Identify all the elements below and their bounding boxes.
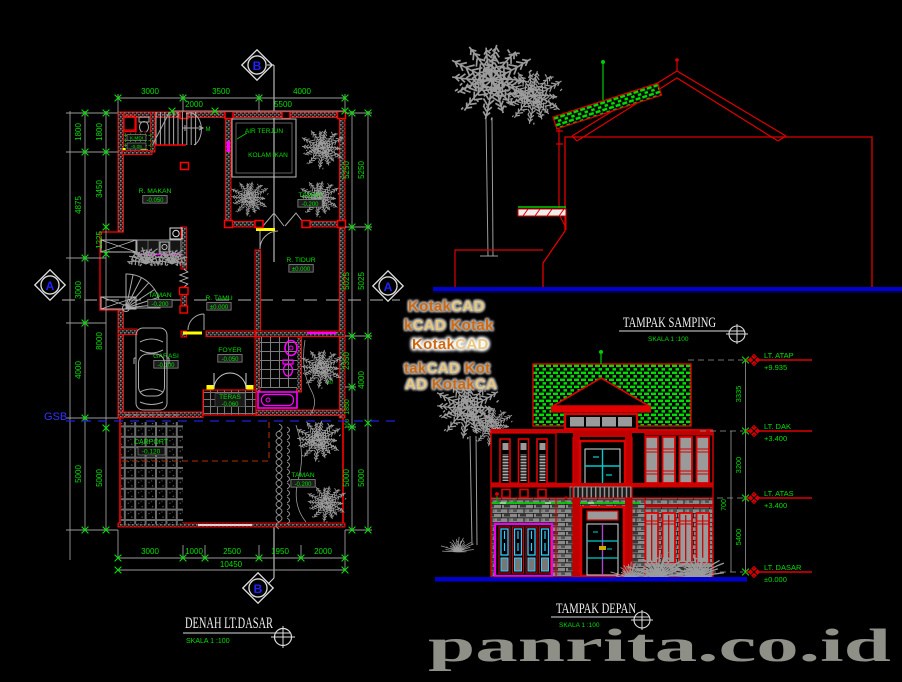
svg-text:3000: 3000 bbox=[74, 281, 83, 299]
svg-text:FOYER: FOYER bbox=[218, 347, 242, 354]
svg-text:5000: 5000 bbox=[74, 465, 83, 483]
svg-text:±0.000: ±0.000 bbox=[292, 267, 311, 273]
svg-text:-0.060: -0.060 bbox=[221, 402, 239, 408]
svg-text:4000: 4000 bbox=[357, 371, 366, 389]
svg-text:10450: 10450 bbox=[220, 560, 243, 569]
svg-text:R. TIDUR: R. TIDUR bbox=[286, 257, 315, 264]
svg-text:M: M bbox=[206, 127, 211, 133]
svg-text:CARPORT: CARPORT bbox=[134, 439, 169, 446]
svg-text:3000: 3000 bbox=[141, 87, 159, 96]
svg-text:B: B bbox=[254, 582, 263, 596]
svg-text:3000: 3000 bbox=[141, 547, 159, 556]
svg-text:R. TAMU: R. TAMU bbox=[205, 295, 232, 302]
svg-text:TAMPAK DEPAN: TAMPAK DEPAN bbox=[556, 601, 636, 617]
svg-text:4875: 4875 bbox=[74, 196, 83, 214]
svg-text:TAMAN: TAMAN bbox=[148, 292, 171, 299]
svg-text:100: 100 bbox=[345, 418, 351, 429]
svg-text:-0.120: -0.120 bbox=[142, 449, 161, 456]
svg-text:3450: 3450 bbox=[95, 180, 104, 198]
svg-text:5025: 5025 bbox=[342, 272, 351, 290]
svg-text:1000: 1000 bbox=[185, 547, 203, 556]
svg-text:10: 10 bbox=[327, 380, 333, 386]
svg-text:5000: 5000 bbox=[95, 469, 104, 487]
svg-text:SKALA 1 :100: SKALA 1 :100 bbox=[648, 336, 689, 343]
svg-text:±0.000: ±0.000 bbox=[210, 305, 229, 311]
svg-text:5250: 5250 bbox=[357, 161, 366, 179]
svg-text:K.MDI: K.MDI bbox=[130, 136, 143, 142]
svg-text:+3.400: +3.400 bbox=[764, 501, 787, 510]
svg-text:LT. ATAS: LT. ATAS bbox=[764, 489, 794, 498]
svg-text:GSB: GSB bbox=[44, 411, 67, 423]
svg-text:R. MAKAN: R. MAKAN bbox=[139, 188, 172, 195]
svg-text:DENAH LT.DASAR: DENAH LT.DASAR bbox=[185, 615, 273, 632]
svg-text:5000: 5000 bbox=[357, 469, 366, 487]
svg-text:-0.050: -0.050 bbox=[221, 357, 239, 363]
svg-text:B: B bbox=[253, 59, 262, 73]
svg-text:-0.050: -0.050 bbox=[146, 198, 164, 204]
svg-text:2000: 2000 bbox=[185, 100, 203, 109]
svg-text:TAMAN: TAMAN bbox=[291, 472, 314, 479]
svg-text:1225: 1225 bbox=[95, 231, 104, 249]
svg-text:-0.200: -0.200 bbox=[151, 302, 169, 308]
svg-text:1850: 1850 bbox=[344, 399, 351, 415]
svg-text:8000: 8000 bbox=[95, 332, 104, 350]
svg-text:1800: 1800 bbox=[95, 123, 104, 141]
svg-text:2000: 2000 bbox=[314, 547, 332, 556]
svg-text:5500: 5500 bbox=[274, 100, 292, 109]
svg-text:2350: 2350 bbox=[342, 352, 351, 370]
svg-text:3335: 3335 bbox=[734, 386, 743, 403]
svg-text:A: A bbox=[46, 279, 55, 293]
svg-text:TAMAN: TAMAN bbox=[298, 192, 321, 199]
svg-text:3500: 3500 bbox=[212, 87, 230, 96]
svg-text:LT. DAK: LT. DAK bbox=[764, 422, 791, 431]
svg-text:-0.200: -0.200 bbox=[294, 482, 312, 488]
svg-text:KOLAM IKAN: KOLAM IKAN bbox=[248, 152, 288, 159]
svg-text:+9.935: +9.935 bbox=[764, 363, 787, 372]
svg-text:±0.000: ±0.000 bbox=[764, 575, 787, 584]
svg-text:AIR TERJUN: AIR TERJUN bbox=[245, 128, 283, 135]
svg-text:5250: 5250 bbox=[342, 161, 351, 179]
svg-text:2500: 2500 bbox=[223, 547, 241, 556]
svg-text:5400: 5400 bbox=[734, 529, 743, 546]
svg-text:1800: 1800 bbox=[74, 123, 83, 141]
svg-text:-0.100: -0.100 bbox=[157, 363, 175, 369]
svg-text:LT. ATAP: LT. ATAP bbox=[764, 351, 794, 360]
svg-text:LT. DASAR: LT. DASAR bbox=[764, 563, 802, 572]
svg-text:4000: 4000 bbox=[74, 361, 83, 379]
svg-text:panrita.co.id: panrita.co.id bbox=[428, 620, 891, 672]
svg-text:-0.200: -0.200 bbox=[301, 202, 319, 208]
svg-text:5025: 5025 bbox=[357, 272, 366, 290]
svg-text:-0.05: -0.05 bbox=[131, 144, 142, 150]
svg-text:SKALA 1 :100: SKALA 1 :100 bbox=[186, 638, 230, 645]
svg-text:700: 700 bbox=[721, 499, 728, 511]
svg-text:TAMPAK SAMPING: TAMPAK SAMPING bbox=[623, 315, 716, 331]
svg-text:+3.400: +3.400 bbox=[764, 434, 787, 443]
svg-text:1950: 1950 bbox=[271, 547, 289, 556]
svg-text:5000: 5000 bbox=[342, 469, 351, 487]
svg-text:3200: 3200 bbox=[734, 457, 743, 474]
svg-text:A: A bbox=[384, 280, 393, 294]
svg-text:TERAS: TERAS bbox=[219, 394, 241, 401]
svg-text:4000: 4000 bbox=[293, 87, 311, 96]
